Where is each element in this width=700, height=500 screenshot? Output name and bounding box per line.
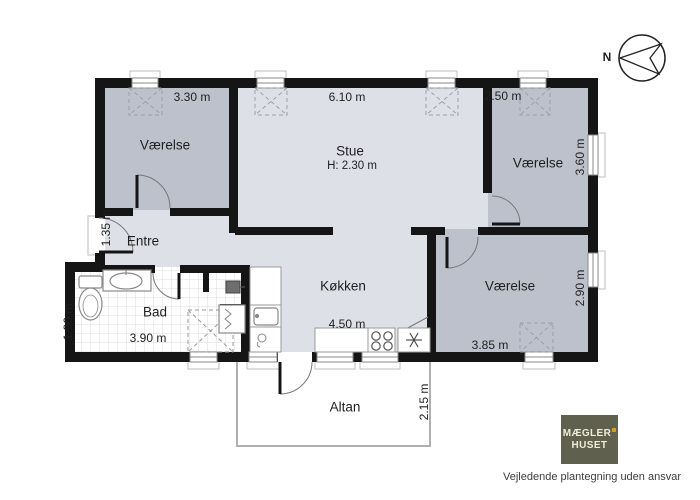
floor-entre [100,210,250,267]
washing-machine-icon [219,305,245,333]
floor-bedroom-top-right [488,83,593,229]
maeglerhuset-logo: MÆGLER HUSET [561,415,618,464]
floor-stue [231,83,488,229]
floor-bedroom-bottom-right [432,229,593,357]
compass-icon [619,35,665,81]
toilet-icon [79,276,102,320]
disclaimer-text: Vejledende plantegning uden ansvar [472,471,700,483]
kitchen-counter-bottom [315,328,395,352]
logo-line2: HUSET [572,440,608,452]
kitchen-sink-icon [254,308,278,325]
floorplan-page: 3.30 m 6.10 m 2.50 m Værelse Stue H: 2.3… [0,0,700,500]
logo-line1: MÆGLER [563,428,612,440]
freezer-icon [398,328,430,352]
altan-outline [237,357,430,446]
room-fills [70,83,593,357]
logo-accent-square [612,428,616,432]
bath-sink-icon [103,270,151,291]
